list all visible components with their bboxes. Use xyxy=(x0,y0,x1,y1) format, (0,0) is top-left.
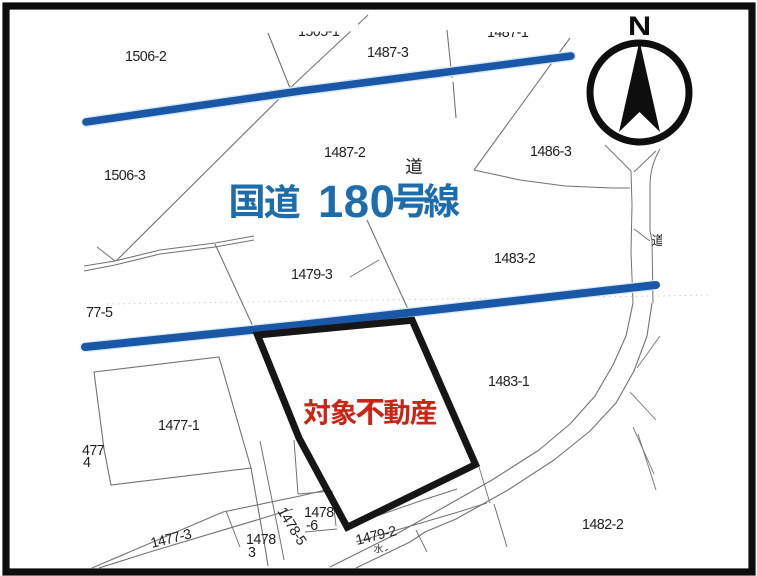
svg-text:1506-2: 1506-2 xyxy=(125,49,167,65)
svg-text:N: N xyxy=(628,12,651,42)
svg-text:1487-3: 1487-3 xyxy=(367,45,409,61)
svg-text:1486-3: 1486-3 xyxy=(530,144,572,160)
svg-text:1477-1: 1477-1 xyxy=(158,418,200,434)
svg-text:1483-2: 1483-2 xyxy=(494,251,536,267)
svg-text:1479-3: 1479-3 xyxy=(291,267,333,283)
svg-text:1482-2: 1482-2 xyxy=(582,517,624,533)
svg-text:1487-2: 1487-2 xyxy=(324,145,366,161)
svg-text:4: 4 xyxy=(83,455,91,471)
svg-text:1506-3: 1506-3 xyxy=(104,168,146,184)
svg-text:180: 180 xyxy=(318,176,395,227)
svg-text:3: 3 xyxy=(248,545,256,561)
svg-text:-6: -6 xyxy=(306,518,318,534)
svg-text:1483-1: 1483-1 xyxy=(488,374,530,390)
svg-text:77-5: 77-5 xyxy=(86,305,113,321)
